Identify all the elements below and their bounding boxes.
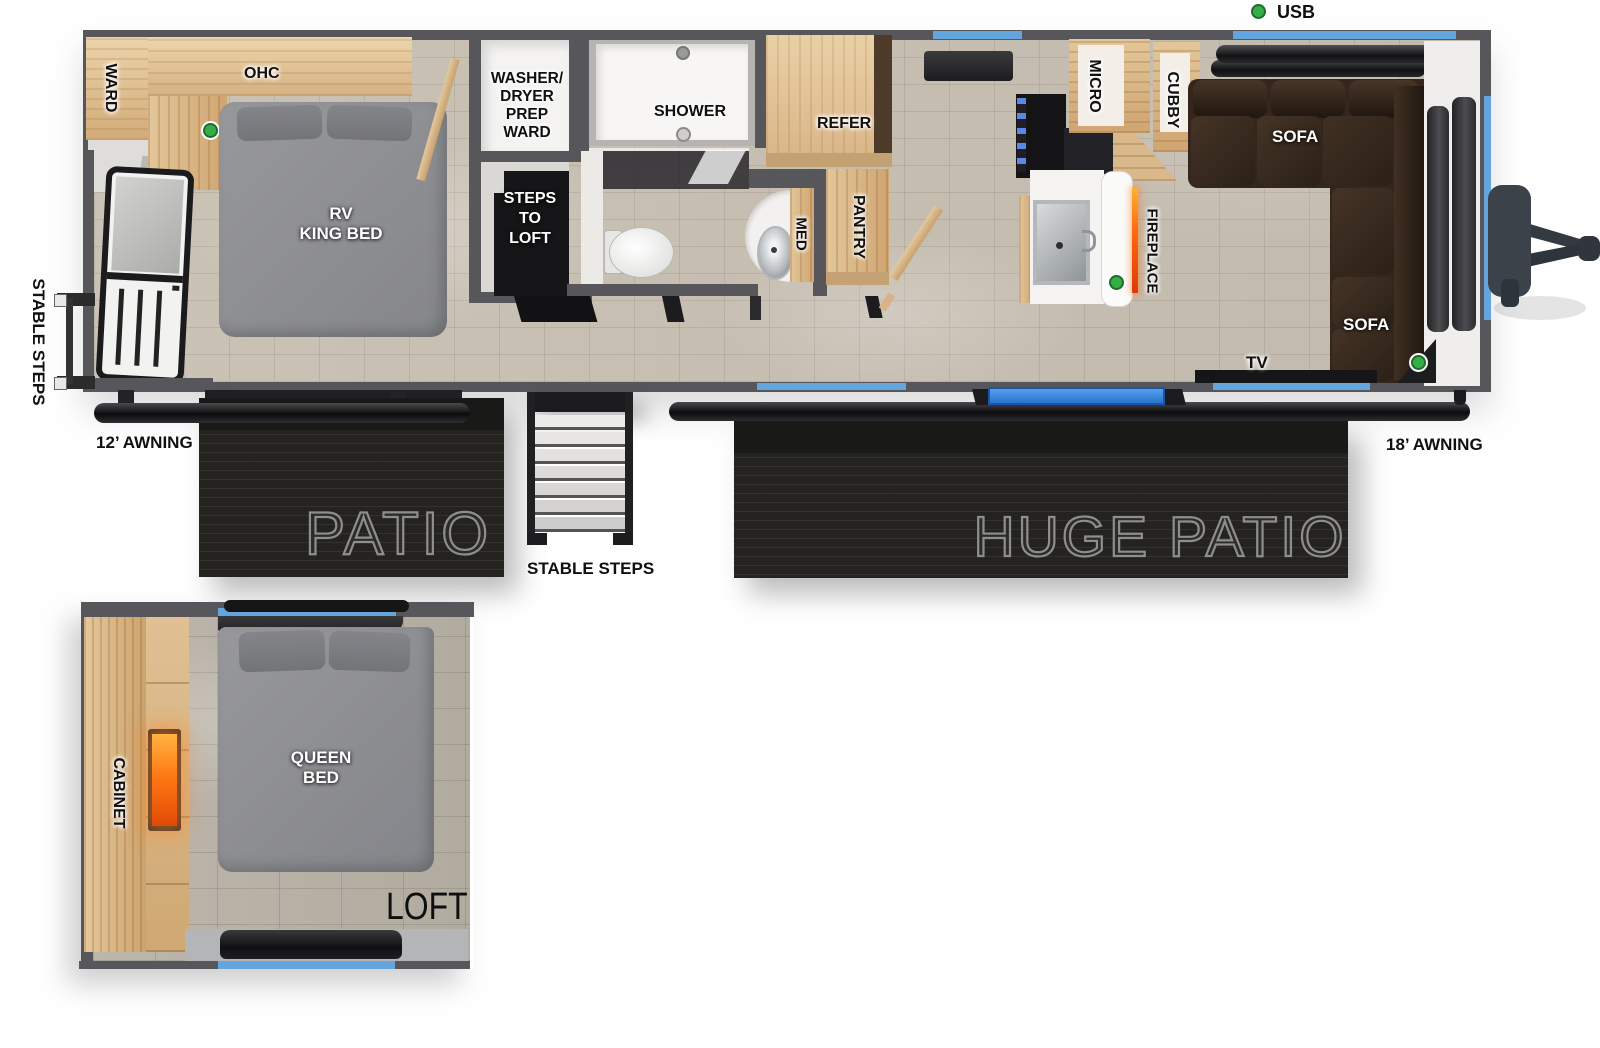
svg-text:PATIO: PATIO <box>305 500 491 567</box>
svg-text:HUGE PATIO: HUGE PATIO <box>973 505 1346 569</box>
